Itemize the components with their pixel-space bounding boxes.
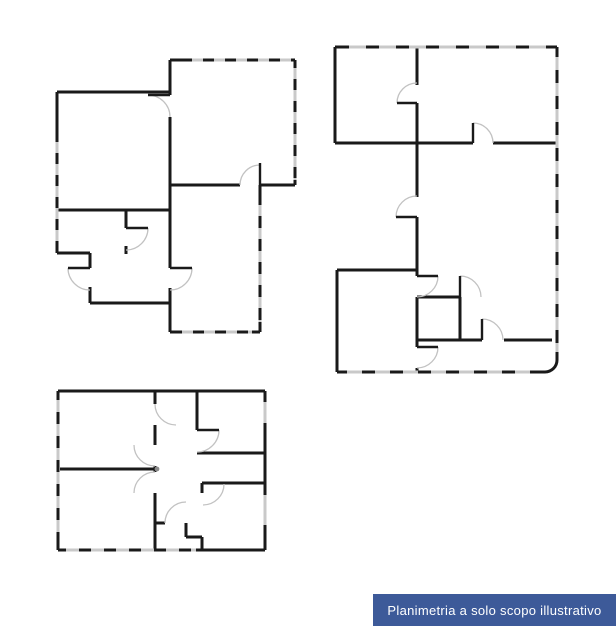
door-swing-arc: [165, 502, 186, 523]
disclaimer-text: Planimetria a solo scopo illustrativo: [387, 603, 601, 618]
door-swing-arc: [240, 165, 260, 185]
door-swing-arc: [473, 123, 493, 143]
door-swing-arc: [148, 95, 170, 117]
floorplans-canvas: [0, 0, 616, 626]
door-swing-arc: [134, 445, 155, 466]
floorplan-right: [335, 47, 557, 373]
door-swing-arc: [68, 268, 90, 290]
door-swing-arc: [397, 83, 417, 103]
door-swing-arc: [482, 319, 503, 340]
door-swing-arc: [126, 228, 148, 250]
wall: [545, 360, 557, 372]
door-swing-arc: [203, 484, 224, 505]
floorplan-page: Planimetria a solo scopo illustrativo: [0, 0, 616, 626]
door-swing-arc: [155, 404, 176, 425]
floorplan-top-left: [57, 60, 295, 332]
door-swing-arc: [134, 472, 155, 493]
door-swing-arc: [396, 196, 417, 217]
floorplan-bottom-left: [58, 391, 265, 550]
door-swing-arc: [417, 276, 438, 297]
door-swing-arc: [197, 430, 219, 452]
door-knob: [155, 467, 160, 472]
door-swing-arc: [417, 347, 438, 368]
door-swing-arc: [170, 268, 192, 290]
door-swing-arc: [460, 276, 481, 297]
disclaimer-banner: Planimetria a solo scopo illustrativo: [373, 594, 616, 626]
